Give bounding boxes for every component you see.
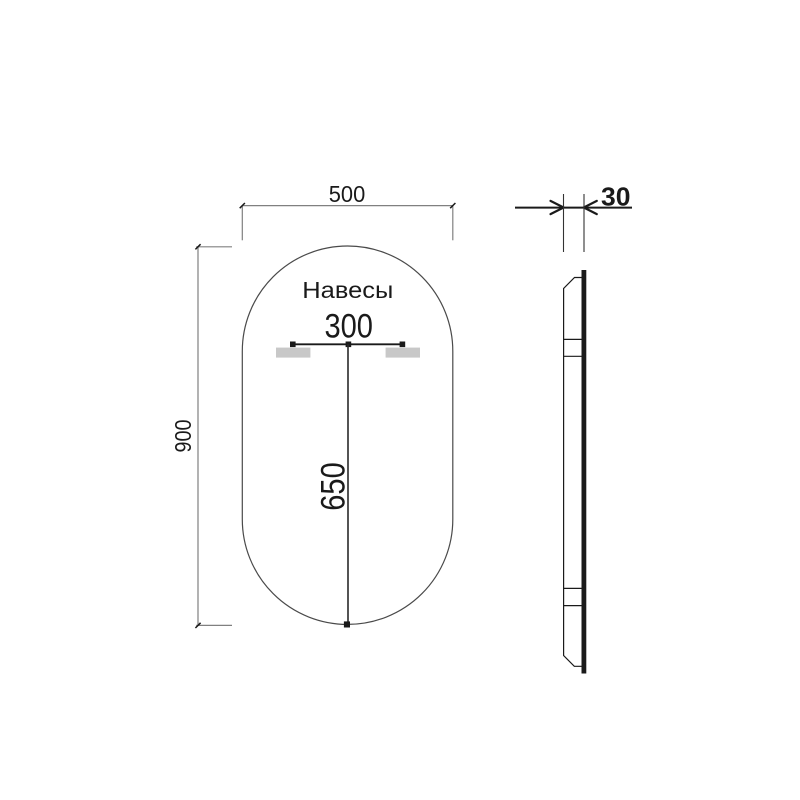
svg-text:Навесы: Навесы <box>302 277 393 303</box>
svg-text:500: 500 <box>329 181 366 207</box>
svg-text:30: 30 <box>601 183 631 211</box>
svg-text:900: 900 <box>170 420 196 453</box>
svg-text:650: 650 <box>315 462 353 511</box>
svg-text:300: 300 <box>324 307 373 345</box>
